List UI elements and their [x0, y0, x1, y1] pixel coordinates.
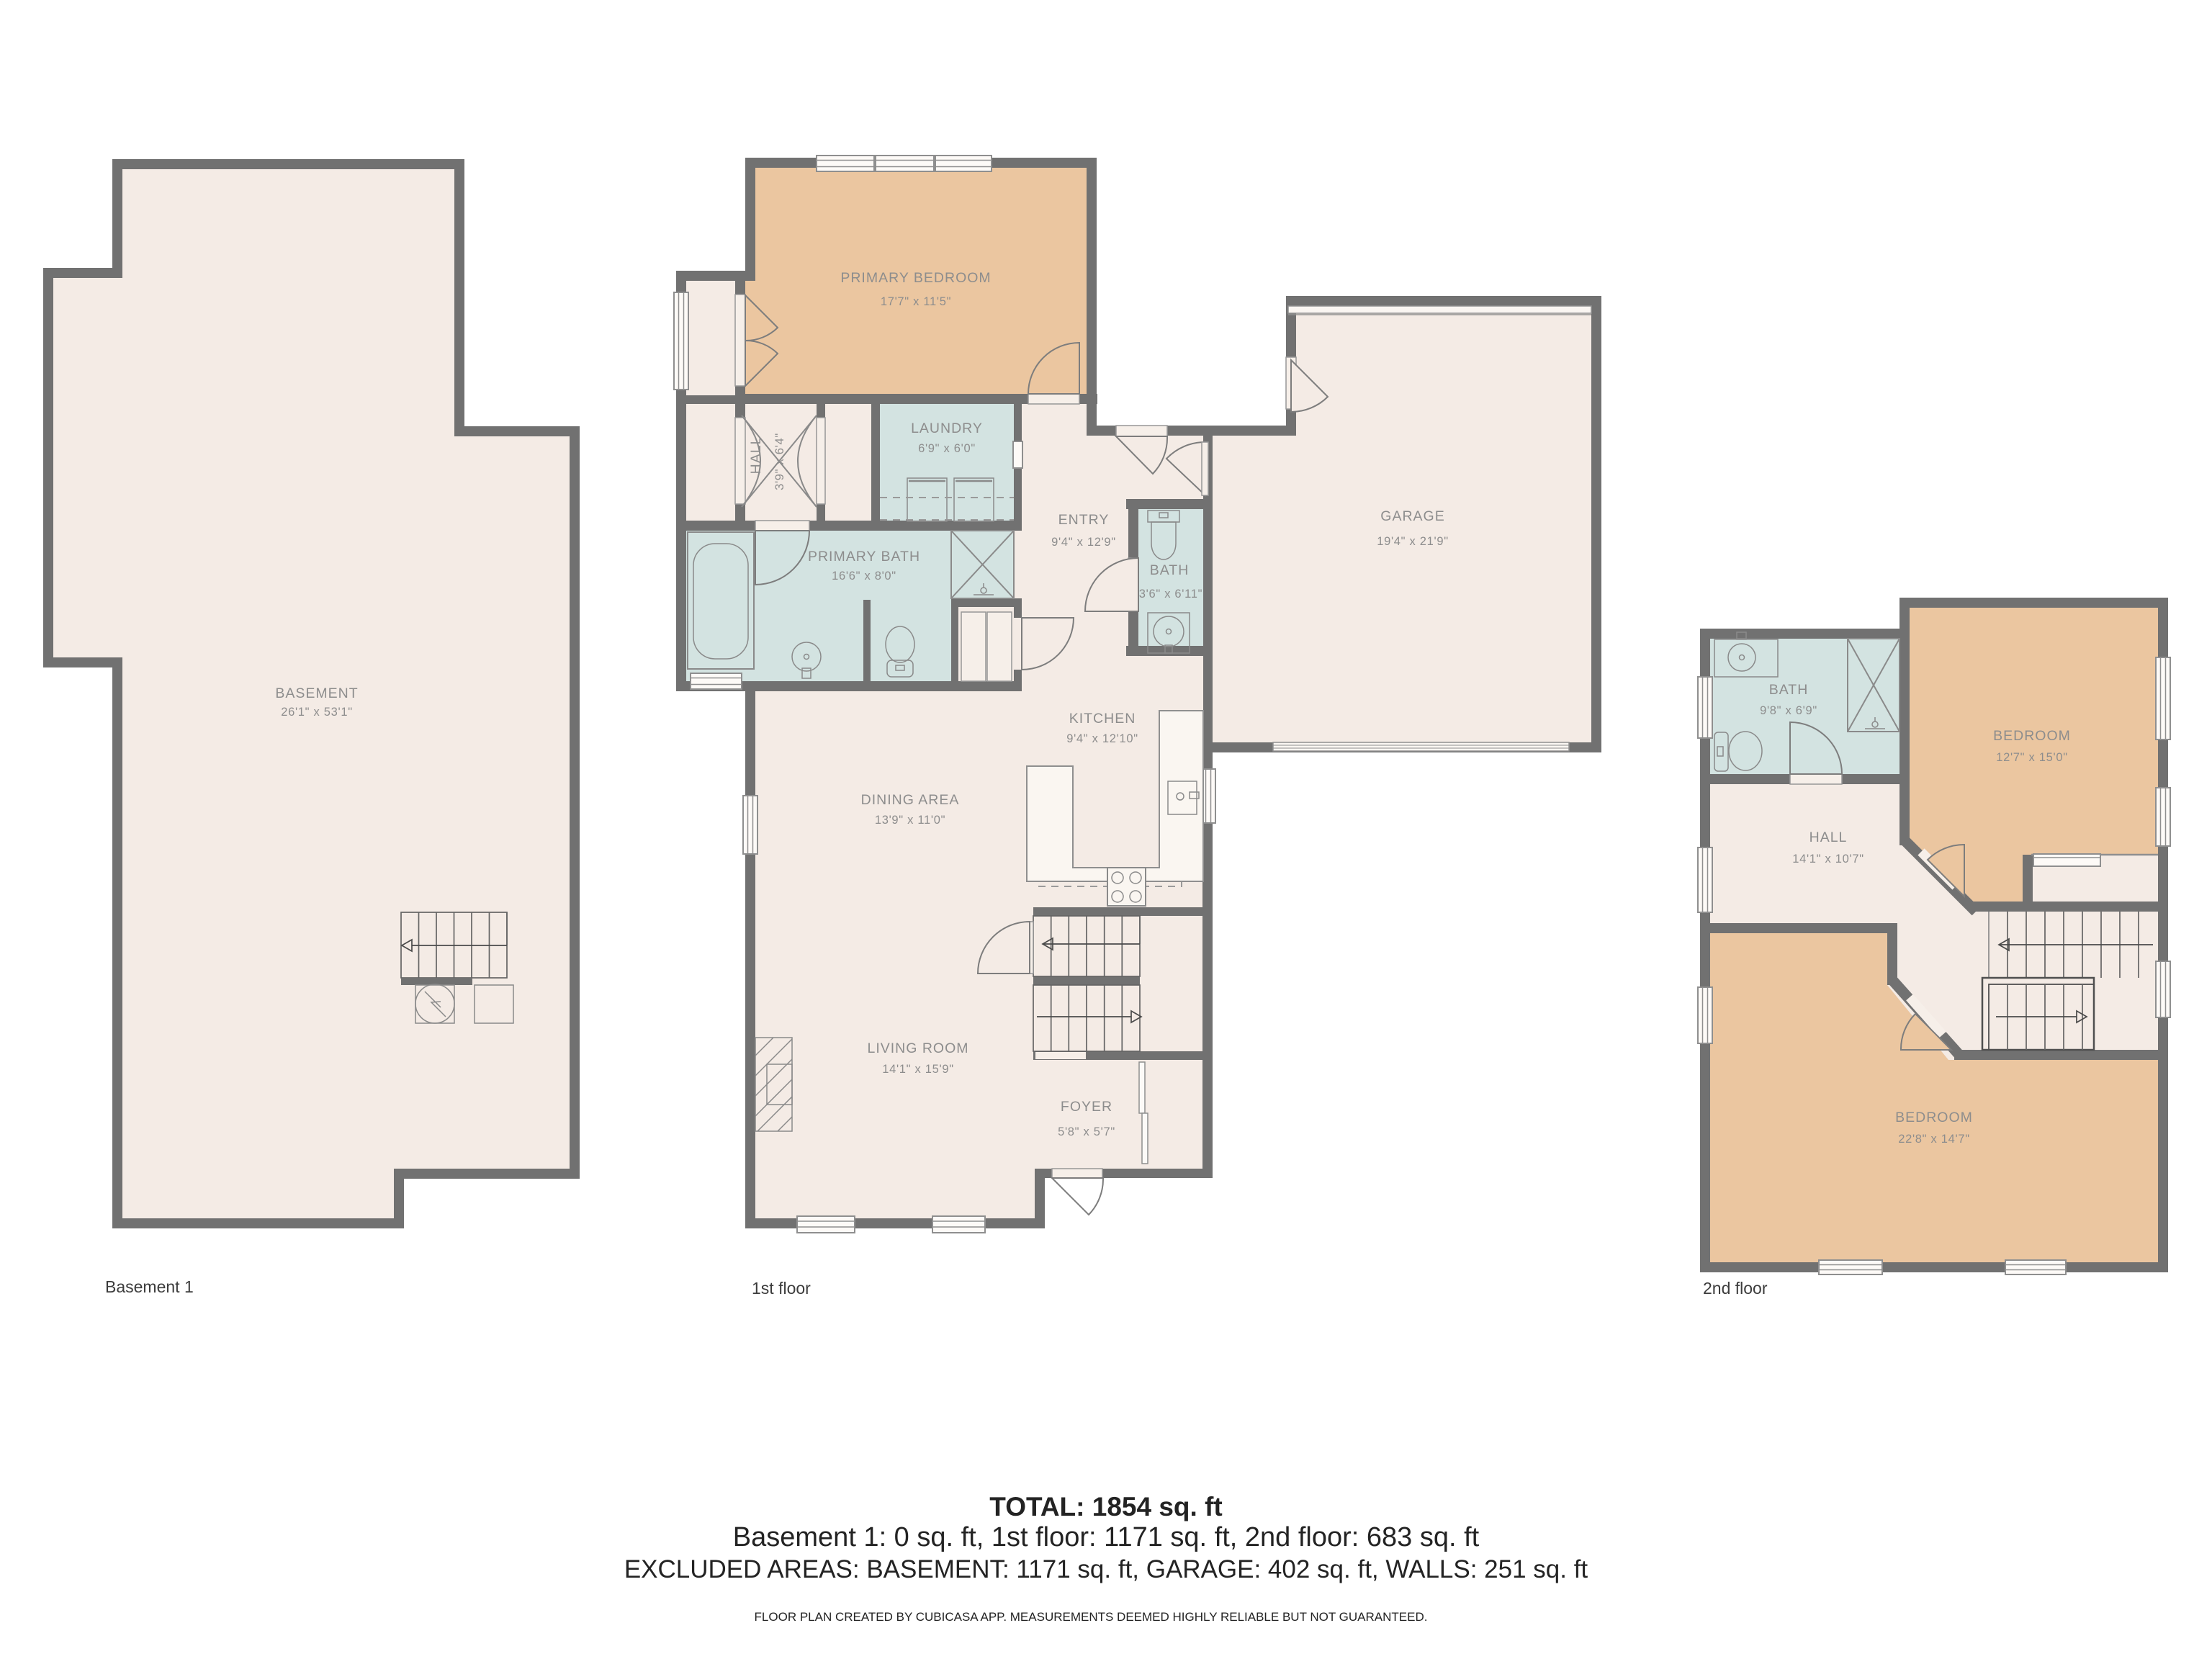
svg-text:BATH: BATH: [1769, 682, 1809, 698]
svg-text:19'4" x 21'9": 19'4" x 21'9": [1377, 535, 1449, 548]
svg-text:DINING AREA: DINING AREA: [861, 792, 960, 808]
svg-text:HALL: HALL: [1809, 829, 1848, 845]
svg-text:13'9" x 11'0": 13'9" x 11'0": [875, 814, 945, 827]
svg-text:TOTAL: 1854 sq. ft: TOTAL: 1854 sq. ft: [989, 1492, 1222, 1521]
svg-text:26'1" x 53'1": 26'1" x 53'1": [281, 706, 353, 719]
svg-text:GARAGE: GARAGE: [1380, 508, 1444, 524]
svg-text:BEDROOM: BEDROOM: [1895, 1110, 1973, 1125]
svg-text:Basement 1: 0 sq. ft, 1st floo: Basement 1: 0 sq. ft, 1st floor: 1171 sq…: [733, 1522, 1480, 1552]
svg-text:KITCHEN: KITCHEN: [1069, 711, 1136, 727]
svg-text:3'6" x 6'11": 3'6" x 6'11": [1139, 588, 1203, 601]
svg-text:14'1" x 15'9": 14'1" x 15'9": [882, 1063, 954, 1076]
svg-text:LAUNDRY: LAUNDRY: [911, 421, 983, 436]
svg-text:LIVING ROOM: LIVING ROOM: [867, 1040, 968, 1056]
svg-text:2nd floor: 2nd floor: [1703, 1279, 1768, 1298]
svg-text:22'8" x 14'7": 22'8" x 14'7": [1898, 1133, 1970, 1146]
svg-text:HALL: HALL: [748, 436, 764, 475]
svg-text:EXCLUDED AREAS: BASEMENT: 1171: EXCLUDED AREAS: BASEMENT: 1171 sq. ft, G…: [624, 1555, 1588, 1583]
svg-text:BATH: BATH: [1150, 562, 1190, 578]
svg-text:BASEMENT: BASEMENT: [275, 685, 358, 701]
svg-text:1st floor: 1st floor: [752, 1279, 811, 1298]
svg-text:Basement 1: Basement 1: [105, 1277, 194, 1296]
svg-text:6'9" x 6'0": 6'9" x 6'0": [918, 442, 976, 455]
svg-text:9'4" x 12'10": 9'4" x 12'10": [1066, 732, 1138, 745]
svg-text:FOYER: FOYER: [1061, 1099, 1112, 1115]
svg-text:9'4" x 12'9": 9'4" x 12'9": [1051, 536, 1116, 549]
svg-text:PRIMARY BEDROOM: PRIMARY BEDROOM: [840, 270, 991, 286]
svg-text:3'9" x 6'4": 3'9" x 6'4": [773, 433, 786, 490]
svg-text:FLOOR PLAN CREATED BY CUBICASA: FLOOR PLAN CREATED BY CUBICASA APP. MEAS…: [755, 1610, 1428, 1624]
svg-text:12'7" x 15'0": 12'7" x 15'0": [1996, 751, 2068, 764]
svg-text:17'7" x 11'5": 17'7" x 11'5": [881, 295, 951, 308]
svg-text:ENTRY: ENTRY: [1058, 512, 1110, 528]
svg-text:PRIMARY BATH: PRIMARY BATH: [808, 549, 920, 565]
svg-text:BEDROOM: BEDROOM: [1993, 728, 2071, 744]
svg-text:14'1" x 10'7": 14'1" x 10'7": [1792, 853, 1864, 866]
svg-text:9'8" x 6'9": 9'8" x 6'9": [1760, 704, 1817, 717]
svg-text:16'6" x 8'0": 16'6" x 8'0": [832, 570, 896, 583]
svg-text:5'8" x 5'7": 5'8" x 5'7": [1058, 1125, 1115, 1138]
